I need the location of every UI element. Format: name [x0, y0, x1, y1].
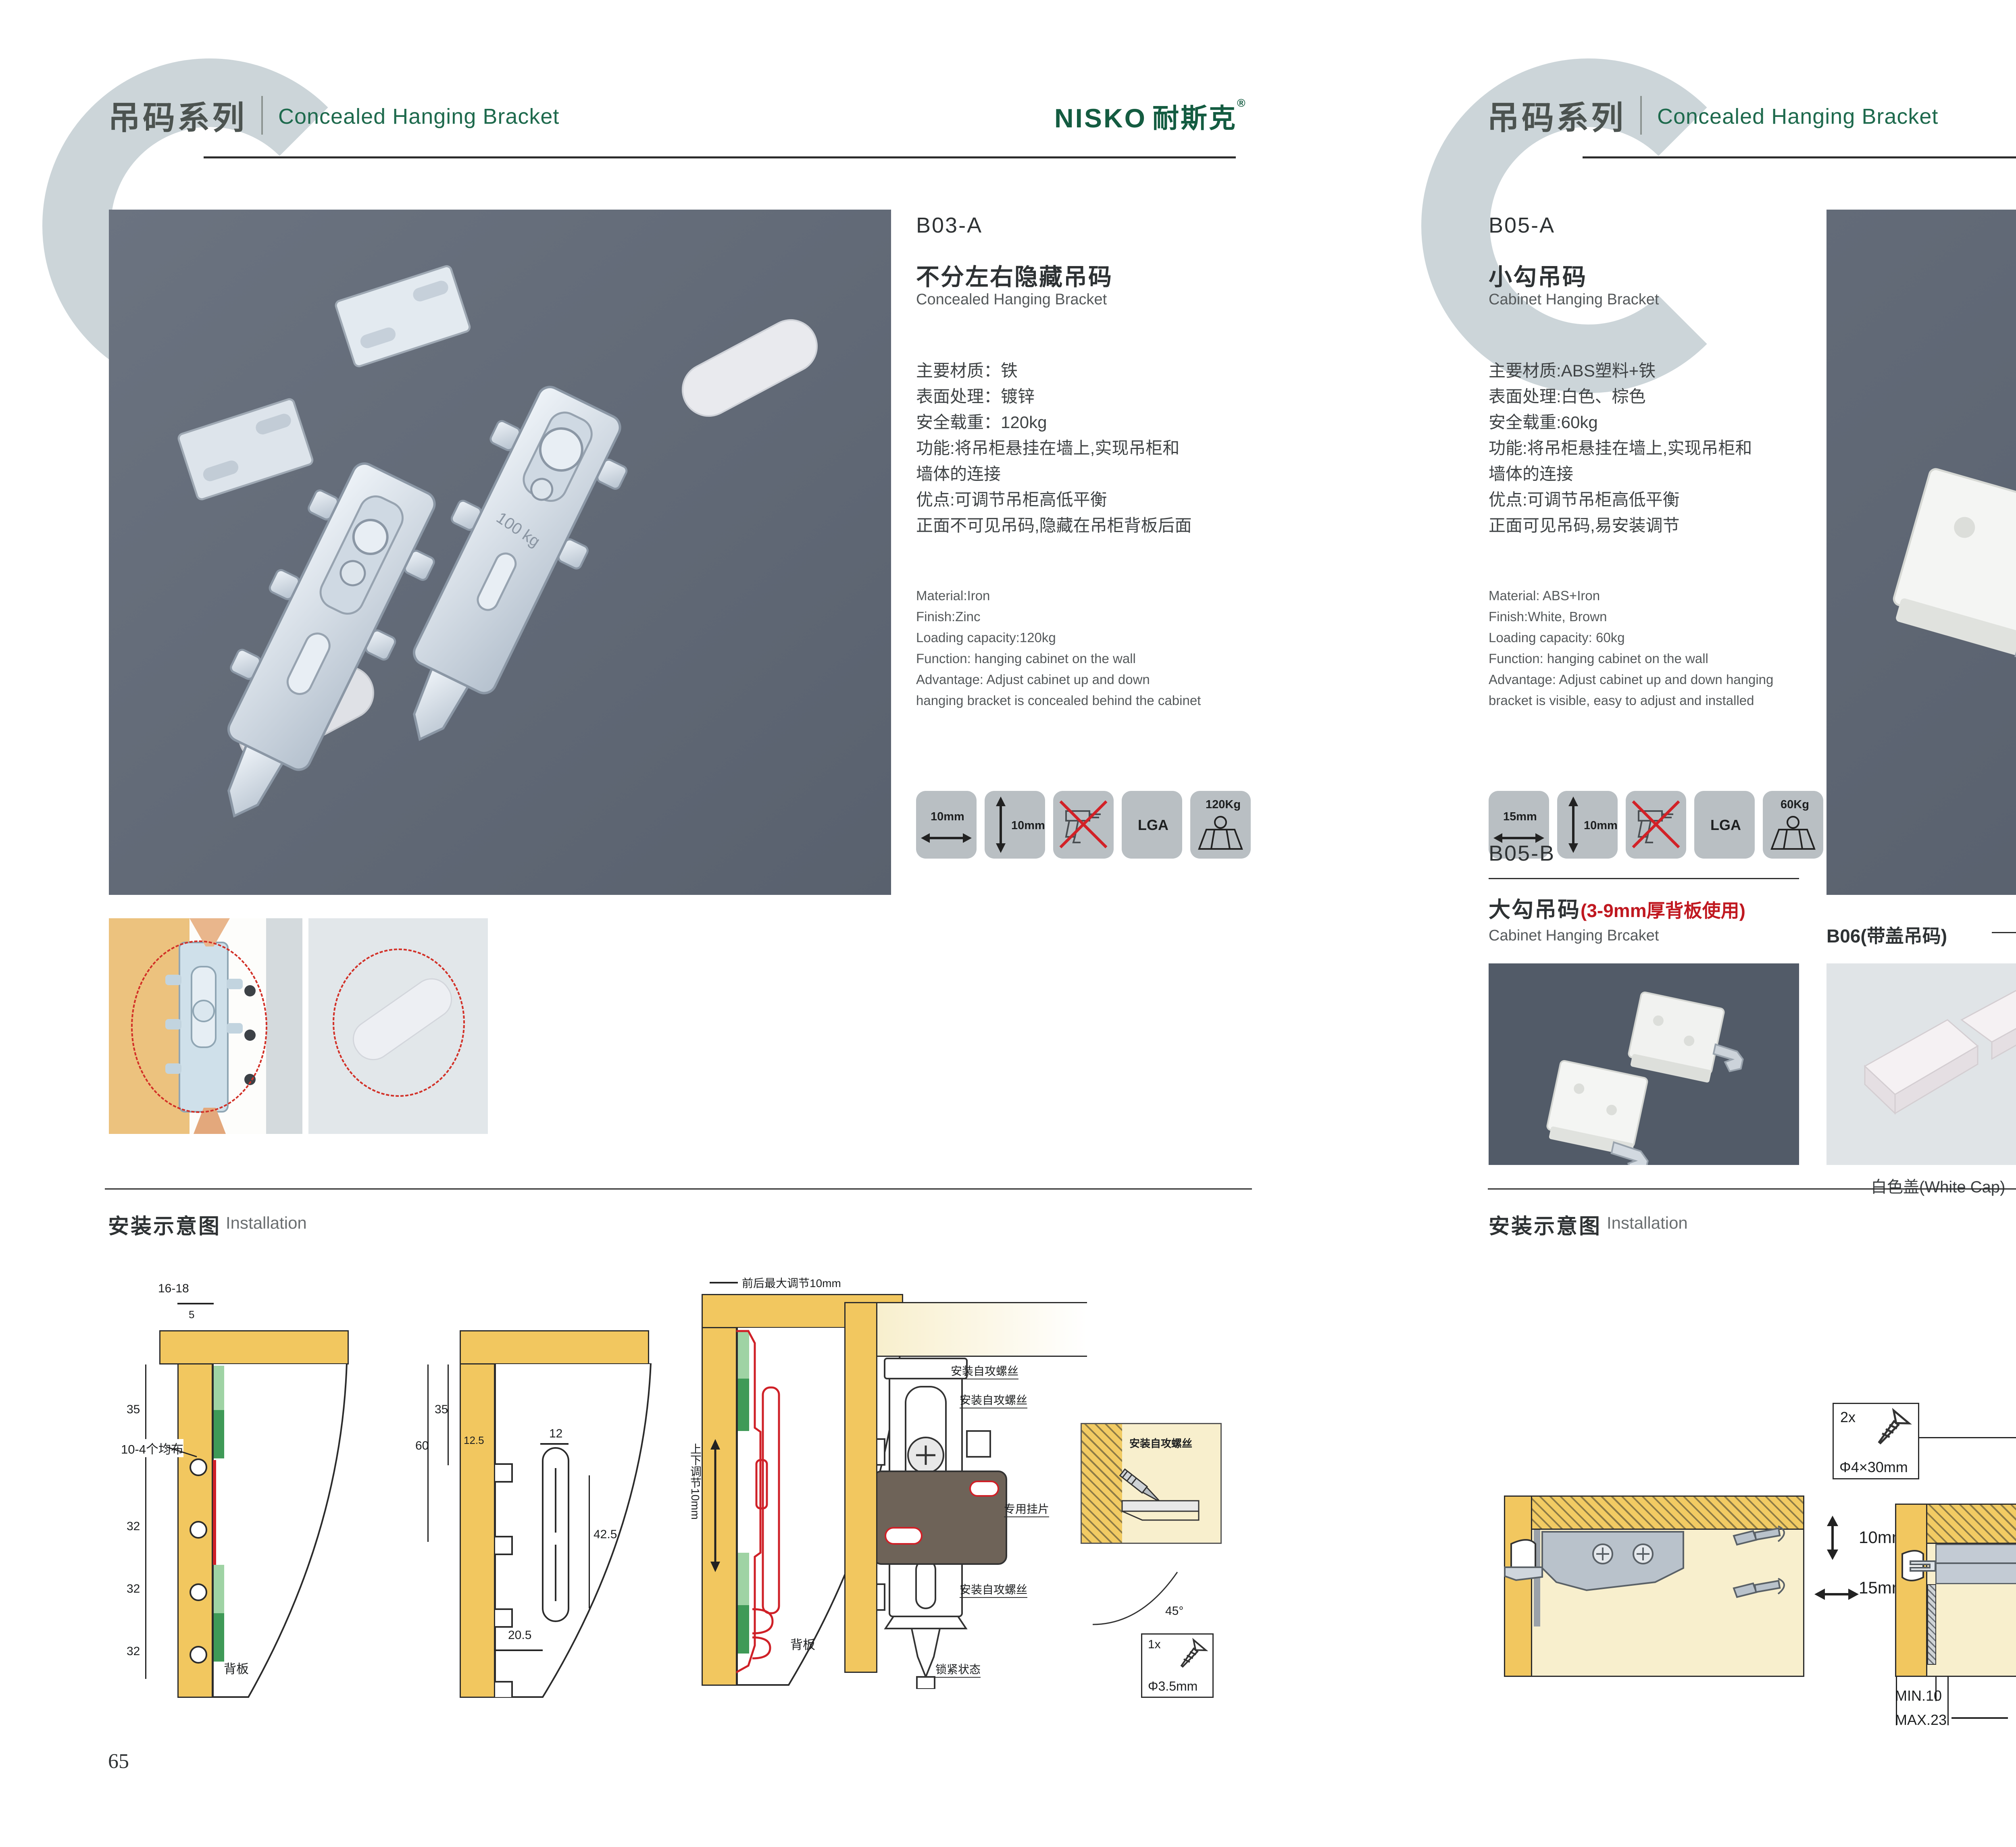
badge-label: 120Kg	[1206, 798, 1241, 811]
b03a-model: B03-A	[916, 213, 983, 238]
badge-height: 10mm	[1557, 791, 1618, 859]
badge-cert: LGA	[1694, 791, 1755, 859]
spec-line: 安全载重:60kg	[1489, 410, 1752, 435]
header-divider-bar	[261, 96, 263, 135]
no-drill-icon	[1057, 798, 1110, 851]
dim-12: 12	[549, 1427, 562, 1441]
callout-screw: 安装自攻螺丝	[960, 1391, 1027, 1408]
b03a-product-photo: 100 kg	[109, 210, 891, 895]
dim-32: 32	[127, 1582, 140, 1596]
spec-line: 表面处理:白色、棕色	[1489, 384, 1752, 410]
badge-cert: LGA	[1122, 791, 1182, 859]
spec-line: 墙体的连接	[916, 461, 1192, 487]
diagram-panel-mounting: 安装自攻螺丝 安装自攻螺丝 专用挂片 安装自攻螺丝 锁紧状态 安装自攻螺丝	[843, 1286, 1254, 1705]
diagram-panel-drilling: 16-18 5 35 32 32 32 10-4个均布 背板	[121, 1282, 403, 1709]
spec-line: Function: hanging cabinet on the wall	[1489, 648, 1773, 669]
b05b-model: B05-B	[1489, 841, 1555, 866]
installation-title-en: Installation	[226, 1213, 307, 1233]
spec-line: Finish:White, Brown	[1489, 606, 1773, 627]
installation-title-en: Installation	[1607, 1213, 1688, 1233]
catalog-spread: 吊码系列 Concealed Hanging Bracket NISKO耐斯克®	[0, 0, 2016, 1847]
badge-label: 10mm	[931, 810, 964, 824]
dim-35: 35	[435, 1403, 448, 1416]
screw-spec-box: 1x Φ3.5mm	[1141, 1633, 1214, 1698]
series-title-en: Concealed Hanging Bracket	[278, 104, 559, 129]
series-title-cn: 吊码系列	[108, 92, 247, 139]
dim-min10: MIN.10	[1895, 1687, 1942, 1704]
spec-line: Advantage: Adjust cabinet up and down	[916, 669, 1201, 690]
dim-20-5: 20.5	[508, 1629, 531, 1642]
height-arrow-icon	[1564, 797, 1582, 853]
screw-qty: 2x	[1840, 1409, 1856, 1426]
cap-card-white	[1826, 963, 2016, 1165]
diagram-panel-slot-dims: 60 35 12.5 12 42.5 20.5	[415, 1282, 673, 1709]
load-capacity-icon	[1769, 813, 1817, 854]
b05b-title-cn: 大勾吊码	[1489, 898, 1581, 922]
header-rule	[204, 156, 1236, 158]
badge-label: 15mm	[1503, 810, 1537, 824]
screw-spec-box: 2x Φ4×30mm	[1833, 1403, 1919, 1479]
spec-line: 功能:将吊柜悬挂在墙上,实现吊柜和	[916, 435, 1192, 461]
b05a-product-photo	[1826, 210, 2016, 895]
b03a-specs-cn: 主要材质：铁 表面处理：镀锌 安全载重：120kg 功能:将吊柜悬挂在墙上,实现…	[916, 358, 1192, 539]
dim-35: 35	[127, 1403, 140, 1416]
load-capacity-icon	[1197, 813, 1244, 854]
badge-no-drill	[1626, 791, 1686, 859]
b03a-cap-photo	[308, 918, 488, 1134]
dim-60: 60	[415, 1439, 429, 1453]
header-rule	[1583, 156, 2016, 158]
b06-label: B06(带盖吊码)	[1826, 921, 1947, 948]
screw-size: Φ3.5mm	[1148, 1679, 1198, 1694]
badge-label: LGA	[1138, 817, 1168, 834]
b05a-specs-cn: 主要材质:ABS塑料+铁 表面处理:白色、棕色 安全载重:60kg 功能:将吊柜…	[1489, 358, 1752, 539]
dim-16-18: 16-18	[158, 1282, 189, 1296]
spec-line: Finish:Zinc	[916, 606, 1201, 627]
brand-logo-cn: 耐斯克	[1152, 103, 1237, 133]
b05b-product-photo	[1489, 963, 1799, 1165]
spec-line: Loading capacity:120kg	[916, 627, 1201, 648]
detail-inset: 安装自攻螺丝	[1081, 1423, 1222, 1544]
label-holes-note: 10-4个均布	[121, 1439, 183, 1457]
screw-qty: 1x	[1148, 1638, 1161, 1651]
b05b-title-note: (3-9mm厚背板使用)	[1581, 900, 1745, 921]
spec-line: 墙体的连接	[1489, 461, 1752, 487]
spec-line: 正面可见吊码,易安装调节	[1489, 513, 1752, 539]
page-number-left: 65	[108, 1749, 129, 1773]
b05b-title-en: Cabinet Hanging Brcaket	[1489, 927, 1659, 944]
badge-no-drill	[1053, 791, 1114, 859]
spec-line: 功能:将吊柜悬挂在墙上,实现吊柜和	[1489, 435, 1752, 461]
b05a-title-cn: 小勾吊码	[1489, 258, 1587, 292]
detail-angle: 45°	[1165, 1604, 1183, 1618]
series-title-en: Concealed Hanging Bracket	[1657, 104, 1938, 129]
header-divider-bar	[1640, 96, 1642, 135]
spec-line: Loading capacity: 60kg	[1489, 627, 1773, 648]
dim-42-5: 42.5	[594, 1528, 617, 1541]
width-arrow-icon	[920, 828, 973, 848]
b03a-title-cn: 不分左右隐藏吊码	[916, 258, 1113, 292]
brand-registered-mark: ®	[1237, 97, 1247, 109]
cap-caption-white: 白色盖(White Cap)	[1871, 1174, 2005, 1197]
section-rule	[105, 1188, 1252, 1190]
spec-line: 优点:可调节吊柜高低平衡	[916, 487, 1192, 513]
screw-size: Φ4×30mm	[1839, 1459, 1908, 1476]
dim-12-5: 12.5	[464, 1434, 484, 1447]
badge-load: 120Kg	[1190, 791, 1251, 859]
b06-rule	[1992, 932, 2016, 933]
badge-label: 60Kg	[1781, 798, 1809, 811]
spec-line: 安全载重：120kg	[916, 410, 1192, 435]
brand-logo-text: NISKO	[1054, 103, 1147, 133]
b05b-title: 大勾吊码(3-9mm厚背板使用)	[1489, 892, 1745, 923]
badge-label: LGA	[1710, 817, 1741, 834]
dim-32: 32	[127, 1645, 140, 1658]
b03a-specs-en: Material:Iron Finish:Zinc Loading capaci…	[916, 585, 1201, 711]
badge-label: 10mm	[1011, 819, 1045, 832]
screw-icon	[1170, 1638, 1211, 1674]
spec-line: hanging bracket is concealed behind the …	[916, 690, 1201, 711]
spec-line: Advantage: Adjust cabinet up and down ha…	[1489, 669, 1773, 690]
b05a-specs-en: Material: ABS+Iron Finish:White, Brown L…	[1489, 585, 1773, 711]
badge-label: 10mm	[1584, 819, 1618, 832]
spec-line: Material: ABS+Iron	[1489, 585, 1773, 606]
dim-max23: MAX.23	[1895, 1712, 1947, 1728]
installation-title-cn: 安装示意图	[108, 1209, 221, 1240]
screw-icon	[1866, 1408, 1914, 1452]
spec-line: 优点:可调节吊柜高低平衡	[1489, 487, 1752, 513]
b03a-install-photo	[109, 918, 302, 1134]
badge-width: 10mm	[916, 791, 977, 859]
diagram-panel-section-dims: 18 MIN.10 MAX.23 58	[1895, 1491, 2016, 1733]
dim-32: 32	[127, 1520, 140, 1533]
label-up-down-adjust: 上下调节10mm	[687, 1443, 703, 1520]
spec-line: 表面处理：镀锌	[916, 384, 1192, 410]
badge-load: 60Kg	[1763, 791, 1823, 859]
spec-line: 主要材质：铁	[916, 358, 1192, 384]
label-backboard: 背板	[224, 1659, 249, 1677]
no-drill-icon	[1630, 798, 1682, 851]
callout-plate: 专用挂片	[1004, 1500, 1049, 1517]
spec-line: Material:Iron	[916, 585, 1201, 606]
b05a-title-en: Cabinet Hanging Bracket	[1489, 291, 1659, 308]
spec-line: Function: hanging cabinet on the wall	[916, 648, 1201, 669]
label-backboard: 背板	[790, 1635, 815, 1653]
installation-title-cn: 安装示意图	[1489, 1209, 1602, 1240]
callout-screw: 安装自攻螺丝	[960, 1581, 1027, 1598]
series-title-cn: 吊码系列	[1487, 92, 1626, 139]
callout-screw: 安装自攻螺丝	[951, 1362, 1018, 1379]
label-front-back-adjust: 前后最大调节10mm	[742, 1275, 841, 1291]
height-arrow-icon	[992, 797, 1010, 853]
detail-label: 安装自攻螺丝	[1129, 1435, 1192, 1450]
callout-locked: 锁紧状态	[935, 1661, 981, 1678]
spec-line: 主要材质:ABS塑料+铁	[1489, 358, 1752, 384]
b05b-rule	[1489, 878, 1799, 879]
dim-5: 5	[189, 1308, 194, 1321]
b05a-model: B05-A	[1489, 213, 1555, 238]
badge-height: 10mm	[985, 791, 1045, 859]
spec-line: bracket is visible, easy to adjust and i…	[1489, 690, 1773, 711]
section-rule	[1488, 1188, 2016, 1190]
b03a-title-en: Concealed Hanging Bracket	[916, 291, 1107, 308]
spec-line: 正面不可见吊码,隐藏在吊柜背板后面	[916, 513, 1192, 539]
